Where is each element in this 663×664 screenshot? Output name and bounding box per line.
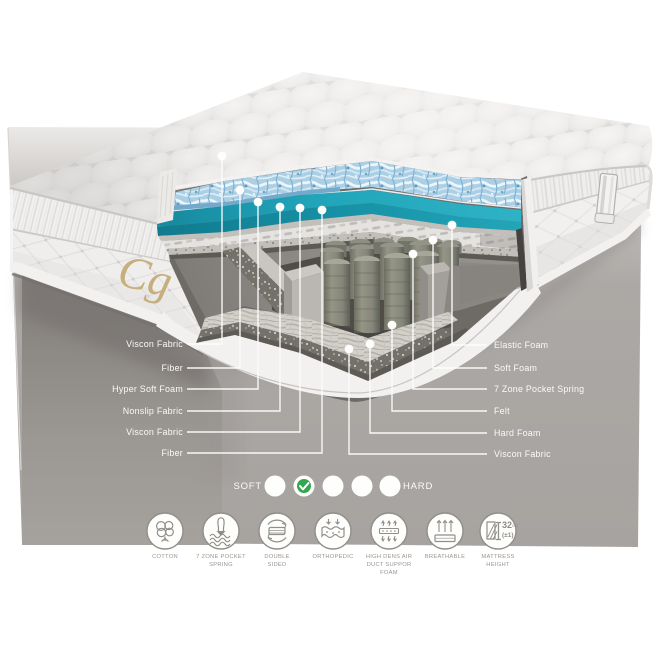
svg-text:HEIGHT: HEIGHT xyxy=(486,562,510,568)
svg-text:Fiber: Fiber xyxy=(162,448,183,458)
svg-text:Hard Foam: Hard Foam xyxy=(494,428,541,438)
svg-text:7 Zone Pocket Spring: 7 Zone Pocket Spring xyxy=(494,384,584,394)
svg-text:FOAM: FOAM xyxy=(380,570,398,576)
svg-text:SIDED: SIDED xyxy=(268,562,287,568)
svg-text:HARD: HARD xyxy=(403,481,433,492)
svg-text:Hyper Soft Foam: Hyper Soft Foam xyxy=(112,384,183,394)
svg-text:Nonslip Fabric: Nonslip Fabric xyxy=(123,406,184,416)
svg-text:Felt: Felt xyxy=(494,406,510,416)
svg-text:(±1): (±1) xyxy=(502,532,514,539)
svg-text:cm: cm xyxy=(512,523,518,528)
svg-text:Fiber: Fiber xyxy=(162,363,183,373)
svg-text:7 ZONE POCKET: 7 ZONE POCKET xyxy=(196,554,246,560)
svg-text:DUCT SUPPOR: DUCT SUPPOR xyxy=(367,562,412,568)
svg-text:32: 32 xyxy=(502,520,512,530)
svg-text:MATTRESS: MATTRESS xyxy=(481,554,514,560)
svg-text:SPRING: SPRING xyxy=(209,562,233,568)
svg-text:Elastic Foam: Elastic Foam xyxy=(494,340,548,350)
svg-text:ORTHOPEDIC: ORTHOPEDIC xyxy=(312,554,353,560)
svg-text:Viscon Fabric: Viscon Fabric xyxy=(126,427,183,437)
svg-text:Viscon Fabric: Viscon Fabric xyxy=(494,449,551,459)
svg-text:BREATHABLE: BREATHABLE xyxy=(425,554,465,560)
svg-text:COTTON: COTTON xyxy=(152,554,178,560)
svg-text:HIGH DENS AIR: HIGH DENS AIR xyxy=(366,554,412,560)
svg-text:Soft Foam: Soft Foam xyxy=(494,363,537,373)
svg-text:DOUBLE: DOUBLE xyxy=(264,554,289,560)
svg-text:Viscon Fabric: Viscon Fabric xyxy=(126,339,183,349)
svg-text:SOFT: SOFT xyxy=(233,481,262,492)
